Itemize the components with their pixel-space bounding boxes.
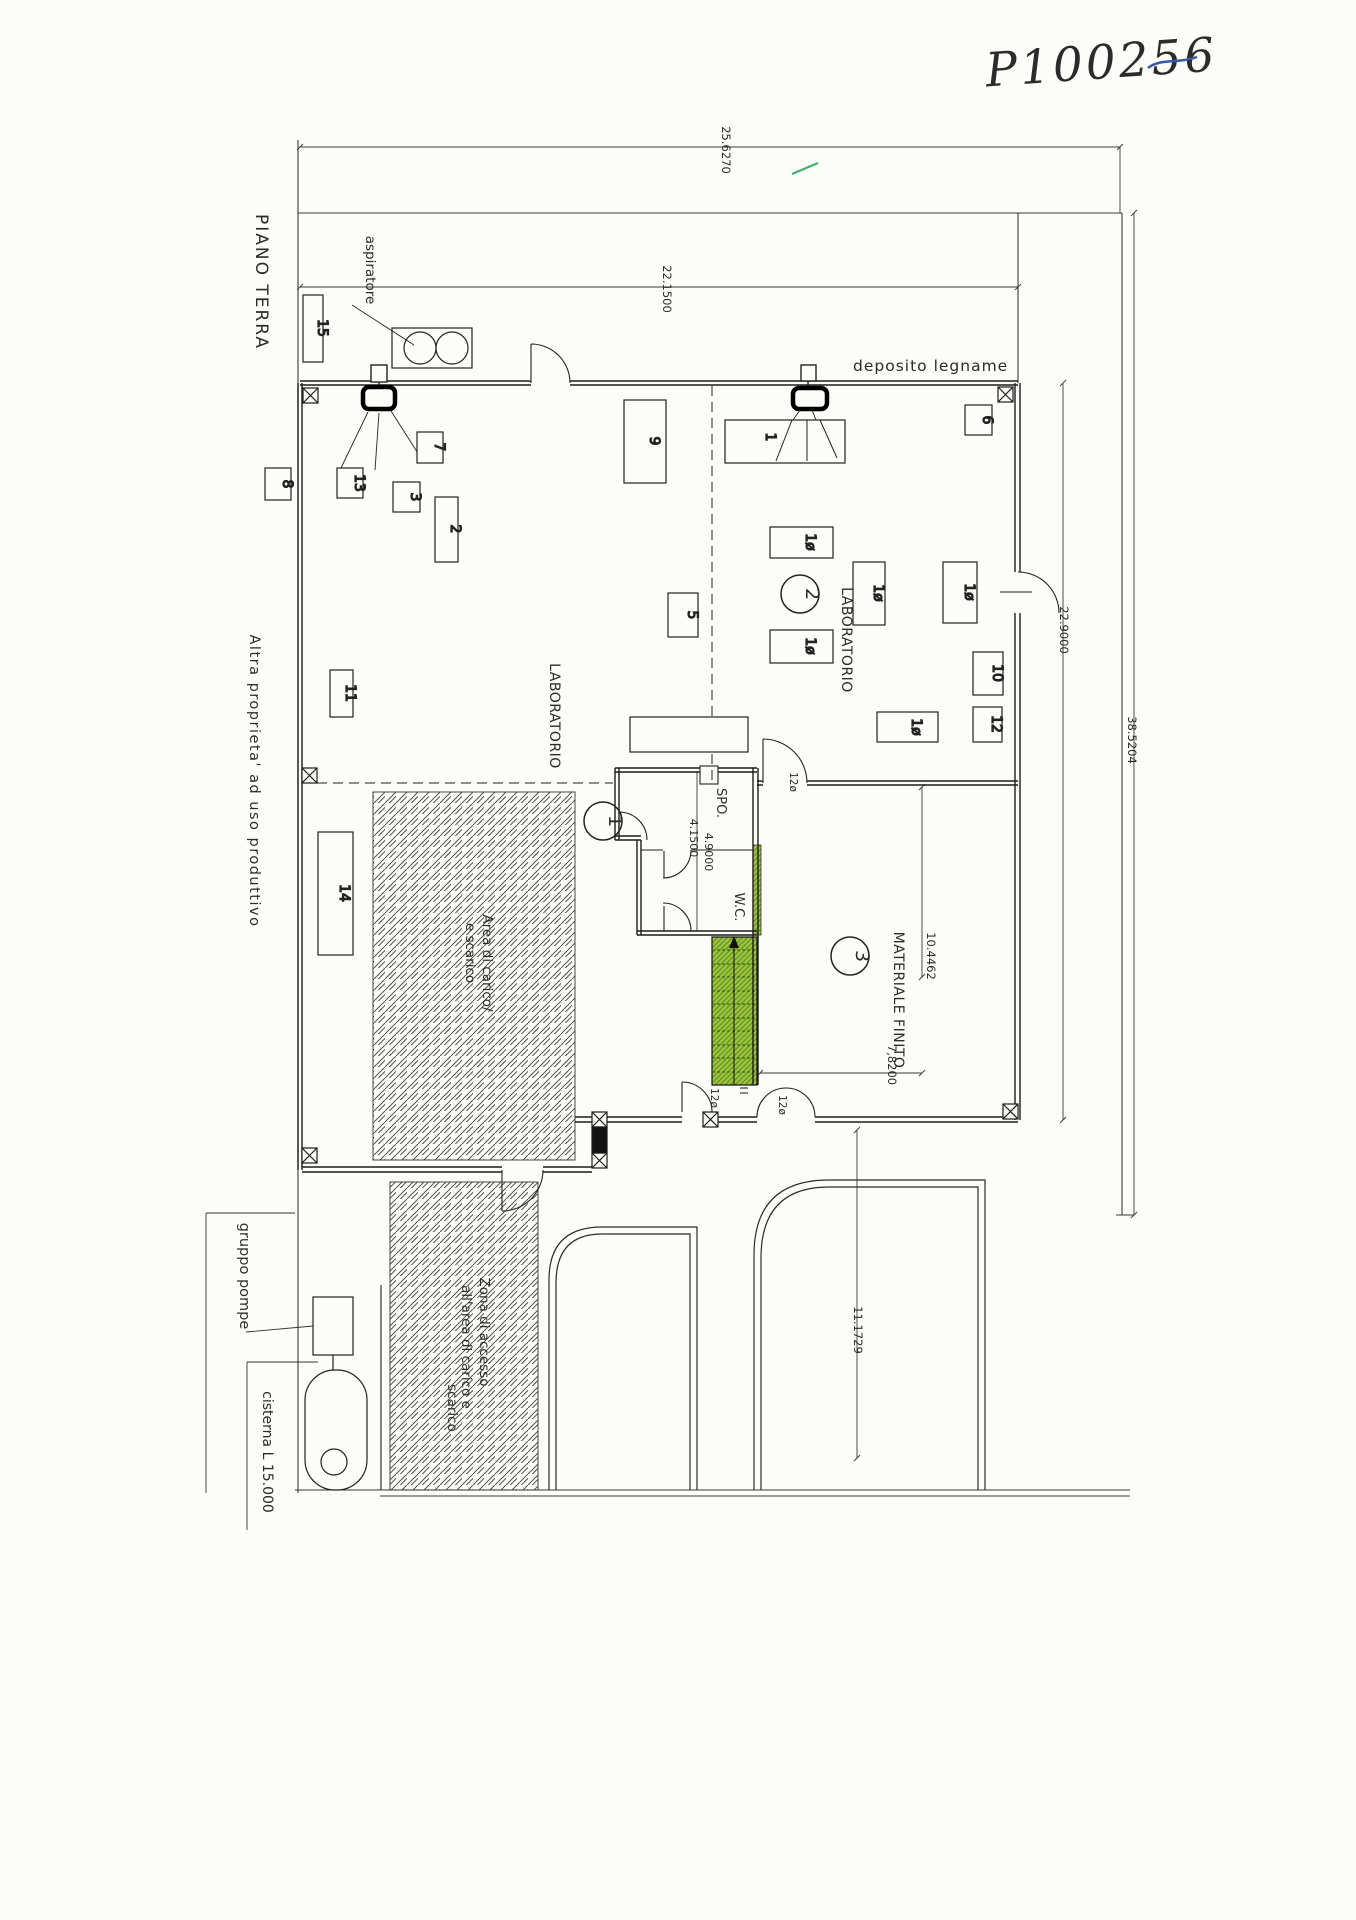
machine-label: 13 [351, 474, 367, 492]
machine-label: 12 [988, 715, 1004, 733]
stair-strip [753, 845, 761, 935]
machine-14: 14 [318, 832, 353, 955]
column-icon [303, 388, 318, 403]
door-width-label: 12ø [776, 1095, 788, 1115]
machine-1o-b: 1ø [853, 562, 886, 625]
machine-label: 1ø [802, 637, 818, 655]
column-icon [302, 768, 317, 783]
machine-label: 7 [431, 443, 447, 452]
neighbor-property-label: Altra proprieta' ad uso produttivo [246, 635, 262, 928]
deposito-label: deposito legname [853, 357, 1008, 375]
machine-label: 2 [447, 525, 463, 534]
machine-1o-f: 1ø [877, 712, 938, 742]
machine-1: 1 [725, 420, 845, 463]
dim-room-width: 7,8200 [885, 1045, 899, 1085]
machine-1o-a: 1ø [770, 527, 833, 558]
bench-rect [630, 717, 748, 752]
machine-label: 5 [684, 611, 700, 620]
floor-plan-drawing: 15 13 7 2 8 3 11 14 9 [0, 0, 1356, 1920]
spo-label: SPO. [713, 788, 728, 818]
machine-3: 3 [393, 482, 423, 512]
dim-yard: 11.1729 [851, 1306, 865, 1354]
door-width-label: 12ø [787, 772, 799, 792]
machine-label: 10 [989, 664, 1005, 682]
zona-line1: Zona di accesso [476, 1278, 492, 1387]
dim-spo-height: 4.9000 [702, 833, 715, 872]
column-icon [703, 1112, 718, 1127]
door-width-label: 12ø [708, 1088, 720, 1108]
column-icon [1003, 1104, 1018, 1119]
column-icon [998, 387, 1013, 402]
carico-line1: Area di carico/ [479, 914, 495, 1012]
machine-12: 12 [973, 707, 1004, 742]
column-icon [592, 1153, 607, 1168]
dim-room-height: 10.4462 [924, 932, 938, 980]
machine-1o-d: 1ø [770, 630, 833, 663]
wc-label: W.C. [731, 893, 746, 922]
column-icon [302, 1148, 317, 1163]
machine-label: 1ø [961, 583, 977, 601]
machine-5: 5 [668, 593, 700, 637]
machine-label: 14 [336, 884, 352, 902]
cisterna-label: cisterna L 15.000 [259, 1391, 275, 1513]
aspiratore-label: aspiratore [362, 236, 378, 305]
paper-background [0, 0, 1356, 1920]
machine-label: 1ø [870, 584, 886, 602]
machine-label: 8 [279, 480, 295, 489]
machine-8: 8 [265, 468, 295, 500]
lab-right-label: LABORATORIO [838, 587, 854, 693]
machine-label: 6 [979, 416, 995, 425]
column-icon [592, 1112, 607, 1127]
machine-13: 13 [337, 468, 367, 498]
black-pier [592, 1127, 607, 1153]
machine-7: 7 [417, 432, 447, 463]
machine-label: 3 [407, 493, 423, 502]
machine-label: 15 [314, 319, 330, 337]
cistern-tank [305, 1370, 367, 1490]
scanned-floor-plan-page: 15 13 7 2 8 3 11 14 9 [0, 0, 1356, 1920]
machine-10: 10 [973, 652, 1005, 695]
ref-number: 1 [604, 815, 626, 827]
machine-label: 11 [342, 684, 358, 702]
machine-label: 1 [762, 433, 778, 442]
zona-line3: scarico [444, 1384, 460, 1432]
machine-9: 9 [624, 400, 666, 483]
machine-6: 6 [965, 405, 995, 435]
dim-building-height: 22.9000 [1057, 606, 1071, 654]
dim-building-width: 22.1500 [660, 265, 674, 313]
pompe-label: gruppo pompe [236, 1223, 252, 1330]
ref-number: 2 [801, 588, 823, 600]
floor-title: PIANO TERRA [251, 214, 271, 350]
lab-left-label: LABORATORIO [546, 663, 562, 769]
machine-label: 1ø [802, 533, 818, 551]
dim-outer-width: 25.6270 [719, 126, 733, 174]
ref-number: 3 [851, 950, 873, 962]
dim-spo-width: 4.1500 [687, 819, 700, 858]
machine-label: 1ø [908, 718, 924, 736]
machine-1o-c: 1ø [943, 562, 977, 623]
machine-label: 9 [646, 437, 662, 446]
dim-outer-height: 38.5204 [1125, 716, 1139, 764]
carico-line2: e scarico [462, 923, 478, 983]
